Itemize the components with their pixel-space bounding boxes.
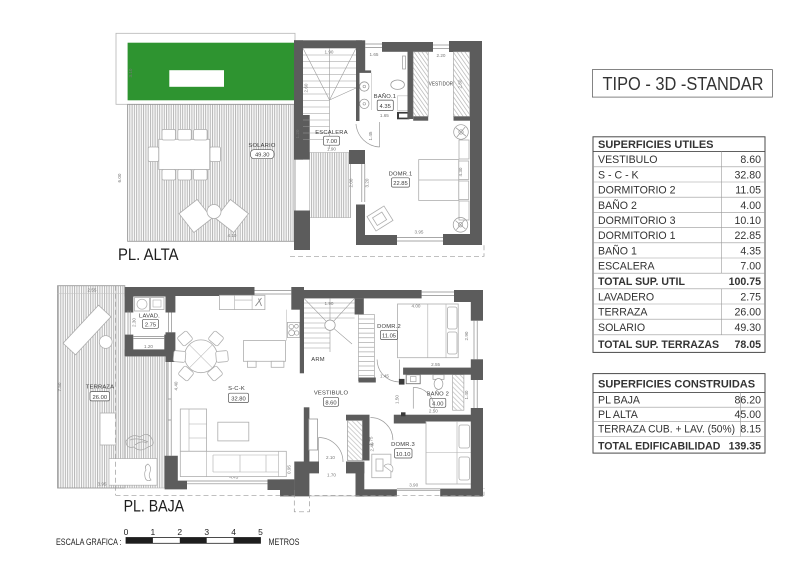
svg-text:PL BAJA: PL BAJA bbox=[598, 395, 641, 407]
svg-text:3: 3 bbox=[204, 527, 209, 537]
svg-text:2.50: 2.50 bbox=[429, 409, 438, 414]
svg-text:PL. BAJA: PL. BAJA bbox=[124, 498, 185, 516]
svg-text:4: 4 bbox=[231, 527, 236, 537]
svg-text:2.60: 2.60 bbox=[304, 83, 309, 92]
svg-text:3.95: 3.95 bbox=[415, 230, 424, 235]
svg-text:DOMR.2: DOMR.2 bbox=[377, 324, 401, 330]
svg-text:2.00: 2.00 bbox=[349, 178, 354, 187]
svg-text:4.30: 4.30 bbox=[458, 167, 463, 176]
svg-text:TERRAZA: TERRAZA bbox=[598, 307, 648, 319]
svg-text:78.05: 78.05 bbox=[734, 339, 761, 351]
svg-text:0.95: 0.95 bbox=[287, 465, 292, 474]
svg-text:3.90: 3.90 bbox=[409, 482, 418, 487]
svg-text:DOMR.3: DOMR.3 bbox=[391, 442, 415, 448]
svg-text:2.30: 2.30 bbox=[132, 318, 137, 327]
svg-text:2.55: 2.55 bbox=[88, 288, 97, 293]
svg-text:ESCALERA: ESCALERA bbox=[598, 261, 655, 273]
svg-text:22.85: 22.85 bbox=[393, 181, 408, 187]
svg-text:METROS: METROS bbox=[269, 537, 300, 547]
svg-text:8.15: 8.15 bbox=[740, 424, 761, 436]
svg-text:BAÑO.1: BAÑO.1 bbox=[374, 93, 396, 100]
svg-text:2.55: 2.55 bbox=[431, 362, 440, 367]
svg-text:49.30: 49.30 bbox=[734, 322, 761, 334]
svg-text:2.90: 2.90 bbox=[464, 331, 469, 340]
svg-text:32.80: 32.80 bbox=[734, 169, 761, 181]
svg-text:10.10: 10.10 bbox=[734, 215, 761, 227]
svg-text:4.00: 4.00 bbox=[740, 200, 761, 212]
svg-text:100.75: 100.75 bbox=[729, 276, 762, 288]
svg-text:1.45: 1.45 bbox=[380, 374, 389, 379]
svg-text:1.20: 1.20 bbox=[295, 129, 300, 138]
svg-text:VESTIDOR: VESTIDOR bbox=[429, 82, 454, 88]
svg-text:BAÑO 2: BAÑO 2 bbox=[598, 199, 637, 212]
svg-text:1: 1 bbox=[151, 527, 156, 537]
svg-text:2.20: 2.20 bbox=[437, 53, 446, 58]
svg-text:4.00: 4.00 bbox=[412, 303, 421, 308]
svg-text:6.00: 6.00 bbox=[117, 173, 122, 182]
svg-text:0: 0 bbox=[124, 527, 129, 537]
svg-text:26.00: 26.00 bbox=[93, 395, 108, 401]
svg-text:11.05: 11.05 bbox=[735, 185, 761, 197]
svg-text:1.40: 1.40 bbox=[464, 390, 469, 399]
svg-text:3.95: 3.95 bbox=[98, 482, 107, 487]
svg-text:TERRAZA: TERRAZA bbox=[86, 385, 114, 391]
svg-text:7.00: 7.00 bbox=[326, 139, 337, 145]
svg-text:5: 5 bbox=[258, 527, 263, 537]
svg-text:TERRAZA CUB. + LAV. (50%): TERRAZA CUB. + LAV. (50%) bbox=[598, 424, 735, 436]
svg-text:PL. ALTA: PL. ALTA bbox=[118, 246, 179, 264]
svg-text:26.00: 26.00 bbox=[734, 307, 761, 319]
svg-text:1.65: 1.65 bbox=[380, 113, 389, 118]
svg-text:1.65: 1.65 bbox=[370, 52, 379, 57]
svg-text:DORMITORIO 3: DORMITORIO 3 bbox=[598, 215, 676, 227]
svg-text:86.20: 86.20 bbox=[734, 395, 761, 407]
svg-text:2.50: 2.50 bbox=[458, 79, 463, 88]
svg-text:SOLARIO: SOLARIO bbox=[598, 322, 645, 334]
svg-text:TIPO - 3D -STANDAR: TIPO - 3D -STANDAR bbox=[603, 74, 764, 94]
svg-text:S-C-K: S-C-K bbox=[228, 386, 245, 392]
svg-text:TOTAL SUP. TERRAZAS: TOTAL SUP. TERRAZAS bbox=[598, 339, 719, 351]
svg-text:1.70: 1.70 bbox=[327, 473, 336, 478]
svg-text:1.50: 1.50 bbox=[395, 395, 400, 404]
svg-text:LAVADERO: LAVADERO bbox=[598, 291, 654, 303]
svg-text:2.75: 2.75 bbox=[740, 291, 761, 303]
svg-text:10.10: 10.10 bbox=[396, 452, 411, 458]
svg-text:139.35: 139.35 bbox=[729, 441, 762, 453]
svg-text:11.05: 11.05 bbox=[382, 334, 396, 340]
svg-text:49.30: 49.30 bbox=[255, 153, 270, 159]
svg-text:VESTIBULO: VESTIBULO bbox=[598, 154, 657, 166]
svg-text:4.40: 4.40 bbox=[174, 381, 179, 390]
svg-text:3.20: 3.20 bbox=[365, 178, 370, 187]
svg-text:2.10: 2.10 bbox=[326, 455, 335, 460]
svg-text:TOTAL SUP. UTIL: TOTAL SUP. UTIL bbox=[598, 276, 685, 288]
svg-text:2: 2 bbox=[177, 527, 182, 537]
svg-text:TOTAL EDIFICABILIDAD: TOTAL EDIFICABILIDAD bbox=[598, 441, 721, 453]
svg-text:8.60: 8.60 bbox=[325, 400, 336, 406]
svg-text:ESCALERA: ESCALERA bbox=[315, 130, 348, 136]
svg-text:4.35: 4.35 bbox=[380, 104, 391, 110]
svg-text:1.90: 1.90 bbox=[325, 301, 334, 306]
svg-text:3.10: 3.10 bbox=[128, 68, 133, 77]
svg-text:BAÑO 2: BAÑO 2 bbox=[427, 391, 449, 398]
svg-text:2.75: 2.75 bbox=[145, 322, 156, 328]
svg-text:LAVAD.: LAVAD. bbox=[139, 314, 160, 320]
svg-text:45.00: 45.00 bbox=[734, 409, 761, 421]
svg-text:PL ALTA: PL ALTA bbox=[598, 409, 639, 421]
svg-text:7.00: 7.00 bbox=[740, 261, 761, 273]
svg-text:SUPERFICIES UTILES: SUPERFICIES UTILES bbox=[598, 139, 714, 151]
svg-text:SOLARIO: SOLARIO bbox=[248, 143, 275, 149]
svg-text:1.90: 1.90 bbox=[327, 147, 336, 152]
svg-text:DORMITORIO 2: DORMITORIO 2 bbox=[598, 185, 676, 197]
svg-text:1.20: 1.20 bbox=[144, 344, 153, 349]
svg-text:VESTIBULO: VESTIBULO bbox=[314, 391, 349, 397]
svg-text:4.35: 4.35 bbox=[740, 245, 761, 257]
svg-text:ARM: ARM bbox=[311, 357, 324, 363]
svg-text:S - C - K: S - C - K bbox=[598, 169, 639, 181]
svg-text:32.80: 32.80 bbox=[231, 396, 246, 402]
svg-text:DOMR.1: DOMR.1 bbox=[389, 172, 413, 178]
svg-text:8.60: 8.60 bbox=[740, 154, 761, 166]
svg-text:SUPERFICIES CONSTRUIDAS: SUPERFICIES CONSTRUIDAS bbox=[598, 379, 755, 391]
svg-text:1.90: 1.90 bbox=[325, 50, 334, 55]
svg-text:BAÑO 1: BAÑO 1 bbox=[598, 244, 637, 257]
svg-text:ESCALA GRAFICA :: ESCALA GRAFICA : bbox=[56, 537, 122, 547]
svg-text:22.85: 22.85 bbox=[734, 230, 761, 242]
svg-text:4.10: 4.10 bbox=[228, 233, 237, 238]
svg-text:7.50: 7.50 bbox=[57, 382, 62, 391]
svg-text:1.45: 1.45 bbox=[368, 131, 373, 140]
svg-text:DORMITORIO 1: DORMITORIO 1 bbox=[598, 230, 676, 242]
svg-text:2.40: 2.40 bbox=[369, 442, 374, 451]
